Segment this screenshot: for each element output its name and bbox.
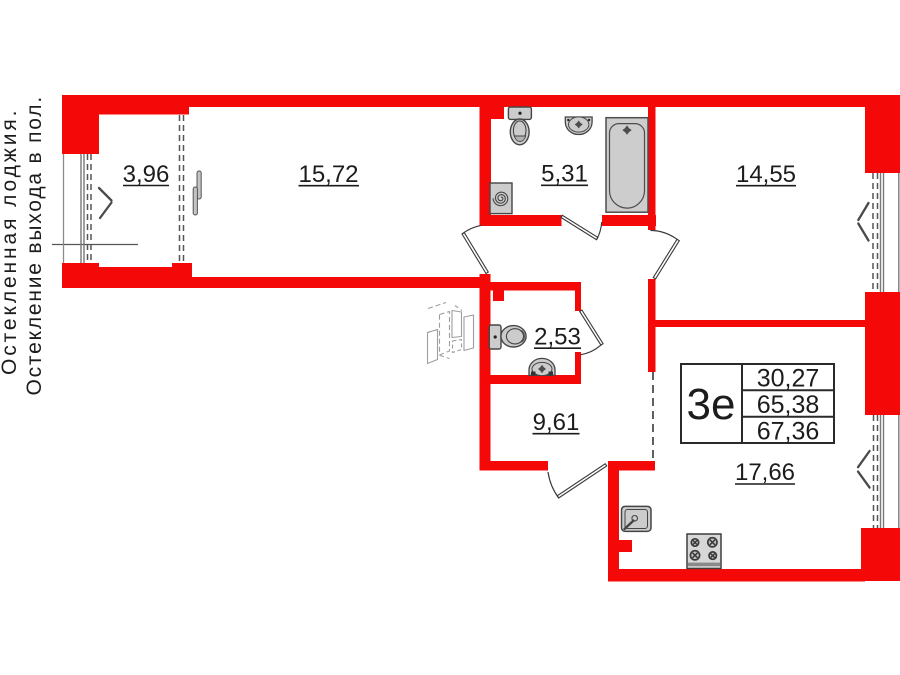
svg-text:2,53: 2,53 bbox=[534, 324, 581, 351]
svg-text:67,36: 67,36 bbox=[757, 418, 820, 446]
svg-text:65,38: 65,38 bbox=[757, 391, 820, 419]
svg-text:3,96: 3,96 bbox=[123, 161, 170, 188]
svg-text:9,61: 9,61 bbox=[533, 409, 580, 436]
svg-text:Остекленная лоджия.: Остекленная лоджия. bbox=[0, 108, 21, 375]
svg-text:5,31: 5,31 bbox=[541, 161, 588, 188]
svg-text:15,72: 15,72 bbox=[298, 161, 358, 188]
svg-text:30,27: 30,27 bbox=[757, 365, 820, 393]
svg-text:Остекление выхода в пол.: Остекление выхода в пол. bbox=[23, 95, 46, 395]
svg-text:3е: 3е bbox=[687, 380, 736, 429]
svg-text:14,55: 14,55 bbox=[736, 161, 796, 188]
svg-text:17,66: 17,66 bbox=[735, 459, 795, 486]
